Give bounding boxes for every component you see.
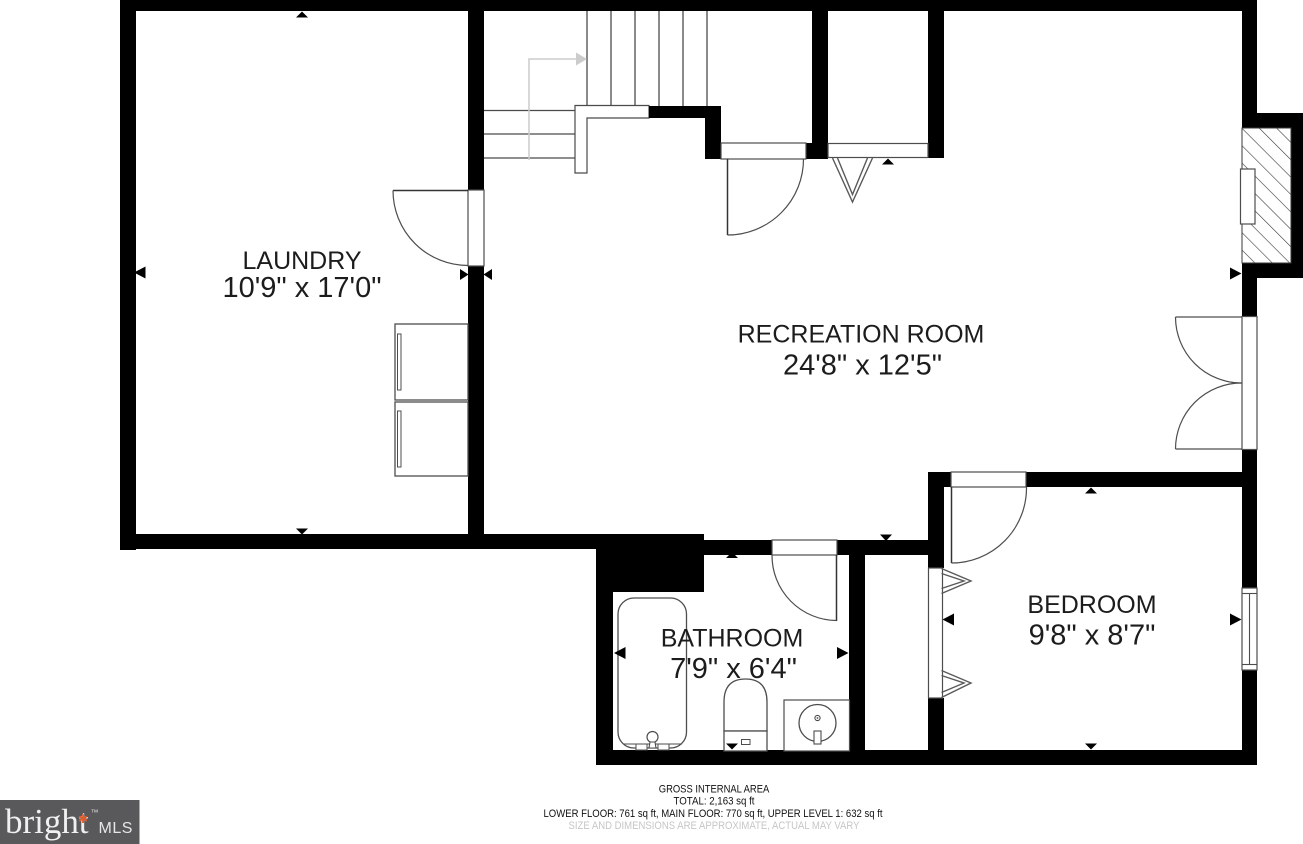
svg-text:BATHROOM: BATHROOM [661, 625, 804, 653]
svg-text:24'8" x 12'5": 24'8" x 12'5" [783, 350, 942, 382]
svg-text:9'8" x 8'7": 9'8" x 8'7" [1029, 620, 1156, 652]
svg-text:10'9" x 17'0": 10'9" x 17'0" [222, 272, 381, 304]
svg-text:LOWER FLOOR: 761 sq ft, MAIN F: LOWER FLOOR: 761 sq ft, MAIN FLOOR: 770 … [544, 808, 884, 820]
svg-text:™: ™ [91, 808, 99, 817]
svg-text:LAUNDRY: LAUNDRY [242, 247, 361, 275]
svg-text:RECREATION ROOM: RECREATION ROOM [738, 321, 985, 349]
svg-text:TOTAL: 2,163 sq ft: TOTAL: 2,163 sq ft [674, 796, 756, 808]
svg-text:BEDROOM: BEDROOM [1027, 591, 1156, 619]
svg-text:✱: ✱ [78, 812, 88, 826]
svg-text:bright: bright [5, 802, 89, 841]
svg-text:7'9" x 6'4": 7'9" x 6'4" [670, 653, 797, 685]
svg-text:SIZE AND DIMENSIONS ARE APPROX: SIZE AND DIMENSIONS ARE APPROXIMATE, ACT… [569, 820, 860, 832]
svg-text:GROSS INTERNAL AREA: GROSS INTERNAL AREA [659, 784, 770, 796]
svg-text:MLS: MLS [99, 820, 133, 837]
